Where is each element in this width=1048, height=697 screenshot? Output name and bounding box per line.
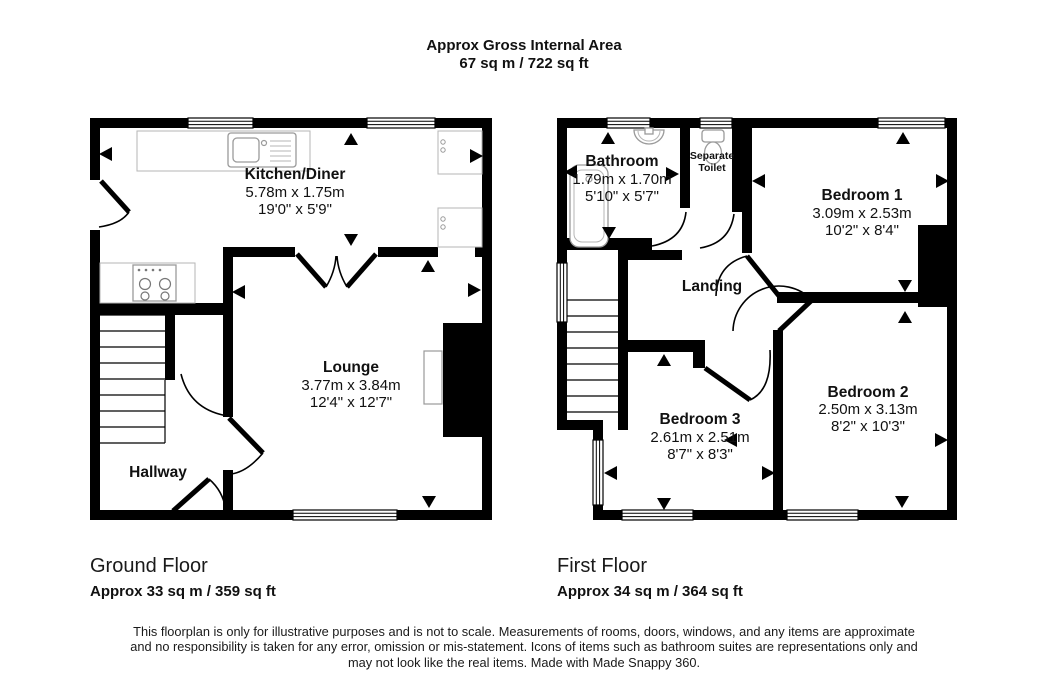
appliance-icon [438, 208, 482, 247]
window [557, 263, 567, 322]
door [652, 212, 686, 246]
window [607, 118, 650, 128]
ground-floor-area: Approx 33 sq m / 359 sq ft [90, 583, 276, 600]
room-label-bathroom: Bathroom [585, 153, 658, 170]
door [705, 350, 770, 400]
room-dim-bedroom1-metric: 3.09m x 2.53m [812, 205, 911, 222]
room-dim-bedroom2-imperial: 8'2" x 10'3" [831, 418, 905, 435]
page-title: Approx Gross Internal Area [0, 37, 1048, 55]
window [622, 510, 693, 520]
double-door [297, 254, 376, 287]
page-subtitle-area: 67 sq m / 722 sq ft [0, 55, 1048, 73]
room-dim-bedroom2-metric: 2.50m x 3.13m [818, 401, 917, 418]
first-floor-plan: Bathroom 1.79m x 1.70m 5'10" x 5'7" Sepa… [557, 118, 957, 520]
disclaimer: This floorplan is only for illustrative … [0, 624, 1048, 670]
disclaimer-line-2: and no responsibility is taken for any e… [0, 639, 1048, 654]
window [293, 510, 397, 520]
room-label-bedroom2: Bedroom 2 [828, 384, 909, 401]
room-label-lounge: Lounge [323, 359, 379, 376]
window [878, 118, 945, 128]
disclaimer-line-1: This floorplan is only for illustrative … [0, 624, 1048, 639]
room-dim-bedroom3-metric: 2.61m x 2.51m [650, 429, 749, 446]
door [700, 214, 734, 248]
door [99, 181, 129, 227]
title-block: Approx Gross Internal Area 67 sq m / 722… [0, 37, 1048, 73]
stairs [567, 300, 618, 412]
room-dim-lounge-metric: 3.77m x 3.84m [301, 377, 400, 394]
front-door [173, 479, 226, 512]
room-dim-bedroom3-imperial: 8'7" x 8'3" [667, 446, 733, 463]
basin-icon [634, 128, 664, 144]
room-label-kitchen: Kitchen/Diner [245, 166, 346, 183]
window [787, 510, 858, 520]
chimney-breast-icon [918, 225, 947, 307]
ground-floor-plan: Kitchen/Diner 5.78m x 1.75m 19'0" x 5'9"… [90, 118, 492, 520]
room-dim-kitchen-imperial: 19'0" x 5'9" [258, 201, 332, 218]
first-floor-label: First Floor [557, 555, 647, 578]
room-label-separate-toilet-1: Separate [690, 150, 735, 162]
ground-floor-label: Ground Floor [90, 555, 208, 578]
room-dim-bedroom1-imperial: 10'2" x 8'4" [825, 222, 899, 239]
room-dim-kitchen-metric: 5.78m x 1.75m [245, 184, 344, 201]
chimney-breast-icon [443, 323, 487, 437]
room-dim-lounge-imperial: 12'4" x 12'7" [310, 394, 392, 411]
first-floor-area: Approx 34 sq m / 364 sq ft [557, 583, 743, 600]
tv-icon [424, 351, 442, 404]
hob-icon [133, 265, 176, 301]
room-label-separate-toilet-2: Toilet [698, 162, 726, 174]
room-dim-bathroom-imperial: 5'10" x 5'7" [585, 188, 659, 205]
window [700, 118, 732, 128]
stairs [100, 315, 165, 443]
window [367, 118, 435, 128]
window [593, 440, 603, 505]
room-label-hallway: Hallway [129, 464, 187, 481]
room-label-landing: Landing [682, 278, 742, 295]
disclaimer-line-3: may not look like the real items. Made w… [0, 655, 1048, 670]
room-label-bedroom3: Bedroom 3 [660, 411, 741, 428]
door [181, 374, 263, 474]
room-dim-bathroom-metric: 1.79m x 1.70m [572, 171, 671, 188]
window [188, 118, 253, 128]
kitchen-sink-icon [228, 133, 296, 167]
room-label-bedroom1: Bedroom 1 [822, 187, 903, 204]
